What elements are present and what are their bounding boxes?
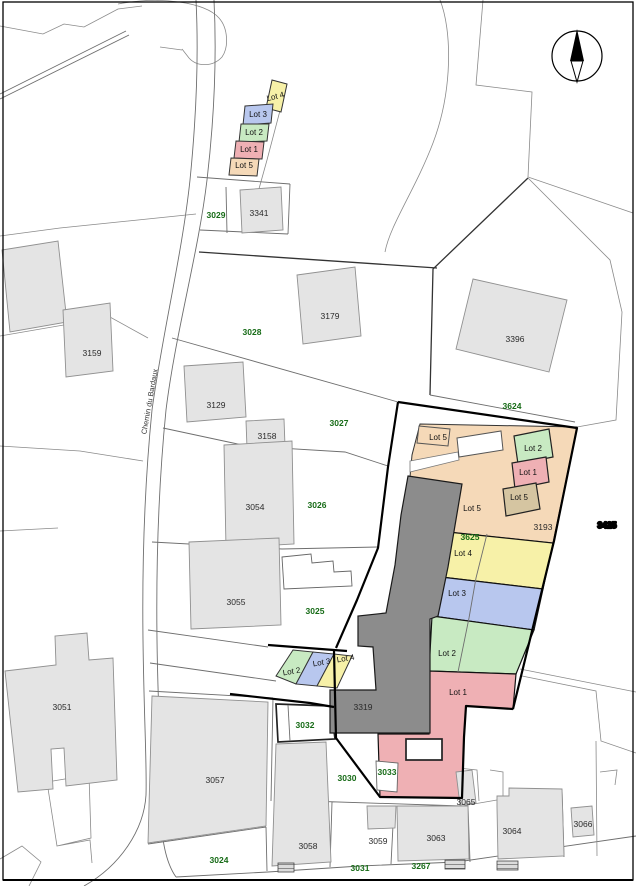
parcel-label-3029: 3029 xyxy=(207,210,226,220)
parcel-label-3024: 3024 xyxy=(210,855,229,865)
parcel-label-3054: 3054 xyxy=(246,502,265,512)
top-lot1-label: Lot 1 xyxy=(240,145,258,154)
parcel-label-3066: 3066 xyxy=(574,819,593,829)
top-lot3-label: Lot 3 xyxy=(249,110,267,119)
main-lot4-label: Lot 4 xyxy=(454,549,472,558)
parcel-label-3396: 3396 xyxy=(506,334,525,344)
cadastral-map-page: 3341 3159 3179 3396 3129 3158 3054 3055 … xyxy=(0,0,636,886)
parcel-label-3033: 3033 xyxy=(378,767,397,777)
building-3179 xyxy=(297,267,361,344)
building-3064 xyxy=(497,788,564,859)
parcel-label-3064: 3064 xyxy=(503,826,522,836)
building-in-lot1 xyxy=(406,739,442,760)
parcel-label-3267: 3267 xyxy=(412,861,431,871)
parcel-label-3341: 3341 xyxy=(250,208,269,218)
building-3054 xyxy=(224,441,294,548)
top-lot2-label: Lot 2 xyxy=(245,128,263,137)
parcel-label-3059: 3059 xyxy=(369,836,388,846)
parcel-label-3319: 3319 xyxy=(354,702,373,712)
building-top-left xyxy=(2,241,67,332)
parcel-label-3179: 3179 xyxy=(321,311,340,321)
building-outline-east-of-3055 xyxy=(282,554,352,589)
road-name-label: Chemin du Bardaux xyxy=(139,368,159,435)
parcel-label-3425: 3425 xyxy=(598,520,617,530)
parcel-label-3025: 3025 xyxy=(306,606,325,616)
top-lot5-label: Lot 5 xyxy=(235,161,253,170)
parcel-label-3129: 3129 xyxy=(207,400,226,410)
building-3051 xyxy=(5,633,117,792)
building-3129 xyxy=(184,362,246,422)
main-lot3-label: Lot 3 xyxy=(448,589,466,598)
building-3159 xyxy=(63,303,113,377)
building-3057 xyxy=(148,696,268,843)
parcel-label-3624: 3624 xyxy=(503,401,522,411)
main-lot5-upper-label: Lot 5 xyxy=(429,433,447,442)
parcel-label-3065: 3065 xyxy=(457,797,476,807)
mid-lot4-label: Lot 4 xyxy=(336,652,356,664)
parcel-label-3193: 3193 xyxy=(534,522,553,532)
building-3055 xyxy=(189,538,281,629)
main-lot5-mid-label: Lot 5 xyxy=(463,504,481,513)
parcel-label-3055: 3055 xyxy=(227,597,246,607)
parcel-label-3159: 3159 xyxy=(83,348,102,358)
parcel-label-3063: 3063 xyxy=(427,833,446,843)
main-lot2-small-label: Lot 2 xyxy=(524,444,542,453)
parcel-label-3028: 3028 xyxy=(243,327,262,337)
main-lot1-small-label: Lot 1 xyxy=(519,468,537,477)
building-3396 xyxy=(456,279,567,372)
main-lot5-small-label: Lot 5 xyxy=(510,493,528,502)
parcel-label-3030: 3030 xyxy=(338,773,357,783)
parcel-label-3057: 3057 xyxy=(206,775,225,785)
main-lot1-label: Lot 1 xyxy=(449,688,467,697)
parcel-label-3027: 3027 xyxy=(330,418,349,428)
parcel-label-3032: 3032 xyxy=(296,720,315,730)
parcel-label-3031: 3031 xyxy=(351,863,370,873)
parcel-label-3026: 3026 xyxy=(308,500,327,510)
main-lot2-label: Lot 2 xyxy=(438,649,456,658)
building-3059-annex xyxy=(367,806,396,829)
cadastral-map: 3341 3159 3179 3396 3129 3158 3054 3055 … xyxy=(0,0,636,886)
north-arrow-icon xyxy=(552,29,602,82)
parcel-label-3158: 3158 xyxy=(258,431,277,441)
parcel-label-3058: 3058 xyxy=(299,841,318,851)
parcel-label-3625: 3625 xyxy=(461,532,480,542)
parcel-label-3051: 3051 xyxy=(53,702,72,712)
